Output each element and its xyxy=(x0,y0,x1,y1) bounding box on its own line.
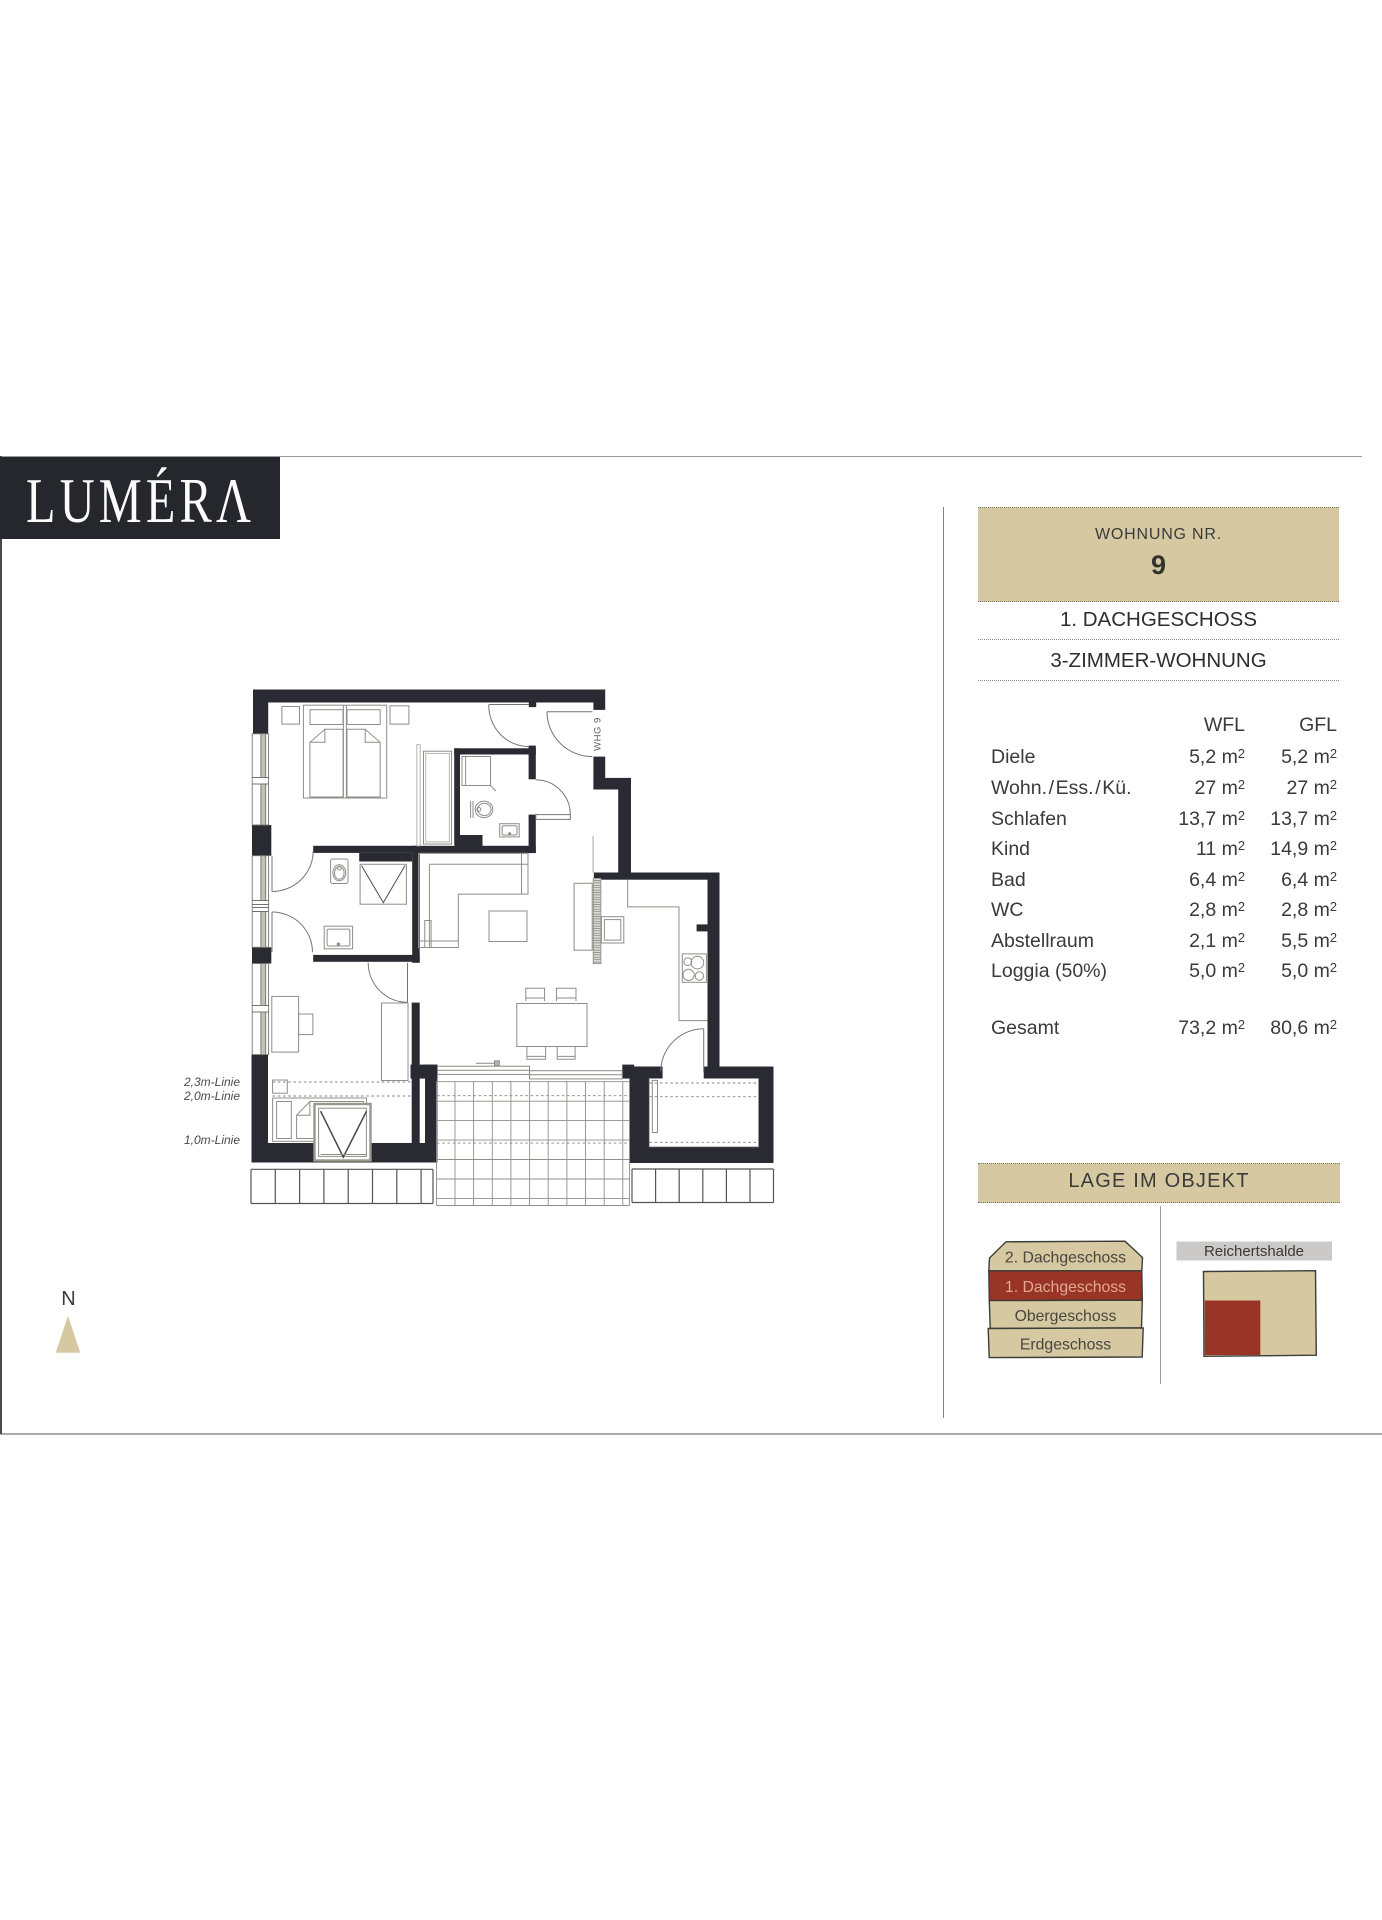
svg-text:1. Dachgeschoss: 1. Dachgeschoss xyxy=(1005,1279,1126,1296)
svg-text:Reichertshalde: Reichertshalde xyxy=(1204,1243,1304,1260)
svg-text:Erdgeschoss: Erdgeschoss xyxy=(1020,1337,1111,1354)
svg-text:Obergeschoss: Obergeschoss xyxy=(1015,1308,1117,1325)
svg-text:2. Dachgeschoss: 2. Dachgeschoss xyxy=(1005,1250,1126,1267)
svg-text:WHG 9: WHG 9 xyxy=(593,717,604,751)
